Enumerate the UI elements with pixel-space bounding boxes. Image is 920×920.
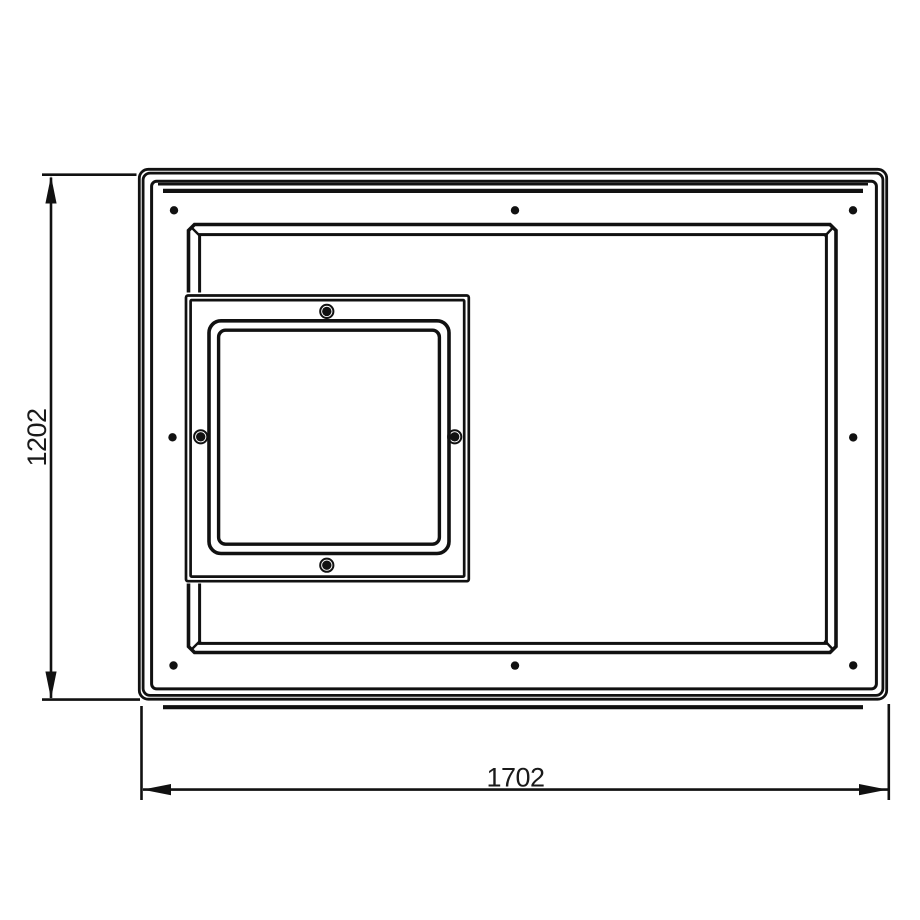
mounting-hole	[849, 206, 857, 214]
arrow-down-icon	[45, 672, 56, 699]
mounting-hole	[511, 661, 519, 669]
bezel-corner-miter-top-right	[825, 228, 834, 237]
screw-head	[322, 561, 331, 570]
mounting-hole	[849, 433, 857, 441]
width-dimension: 1702	[142, 704, 889, 800]
bezel-corner-miter-bottom-left	[192, 641, 201, 650]
screw-head	[196, 432, 205, 441]
bezel-corner-miter-top-left	[192, 228, 201, 237]
technical-drawing-canvas: 1202 1702	[0, 0, 920, 920]
screw-head	[450, 432, 459, 441]
height-dimension-label: 1202	[22, 408, 52, 466]
mounting-hole	[849, 661, 857, 669]
arrow-left-icon	[143, 784, 172, 795]
mounting-hole	[169, 661, 177, 669]
drawing-sheet: 1202 1702	[0, 0, 920, 920]
bezel-corner-miter-bottom-right	[825, 641, 834, 650]
arrow-up-icon	[45, 176, 56, 204]
screw-head	[322, 307, 331, 316]
mounting-hole	[170, 206, 178, 214]
square-sub-frame	[184, 293, 472, 584]
mounting-hole	[168, 433, 176, 441]
mounting-hole	[511, 206, 519, 214]
height-dimension: 1202	[22, 175, 140, 700]
width-dimension-label: 1702	[486, 763, 544, 793]
arrow-right-icon	[859, 784, 888, 795]
square-frame-mask	[184, 293, 472, 584]
